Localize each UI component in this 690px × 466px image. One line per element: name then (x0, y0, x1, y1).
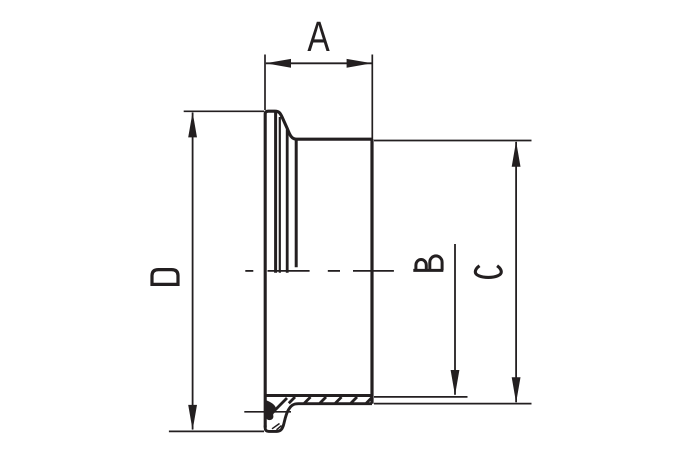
svg-text:A: A (307, 13, 330, 61)
